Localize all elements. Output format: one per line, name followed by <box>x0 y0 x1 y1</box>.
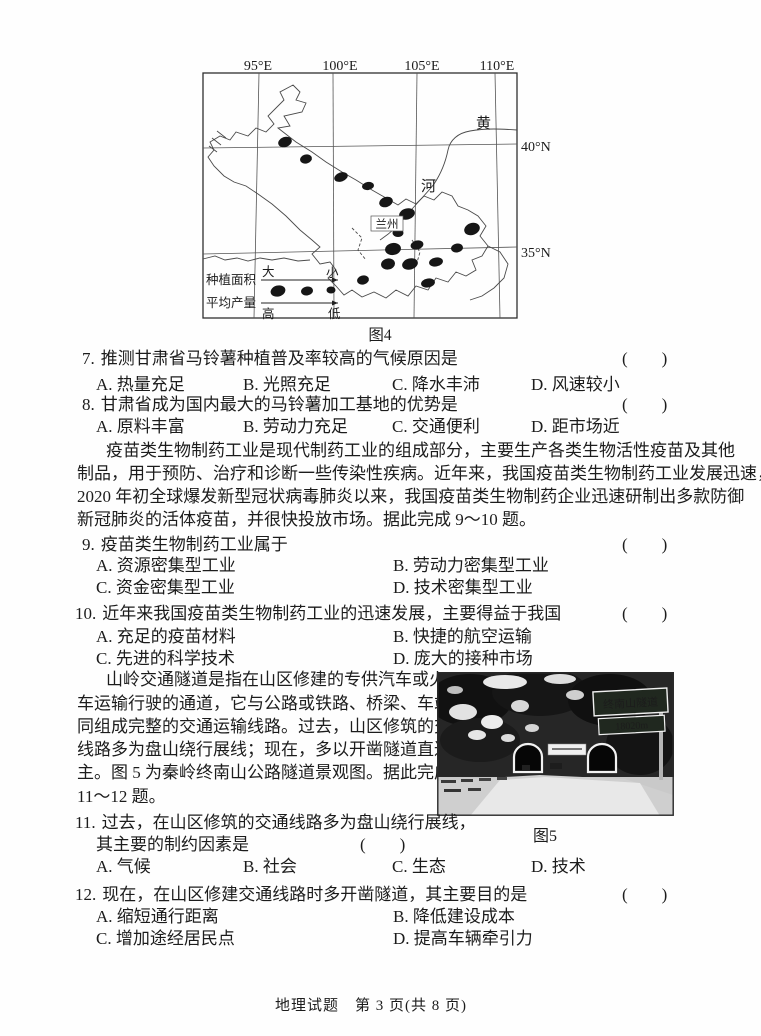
legend-yield-left: 高 <box>262 306 275 321</box>
question-7-option-b: B. 光照充足 <box>243 375 331 395</box>
question-12-option-d: D. 提高车辆牵引力 <box>393 929 533 949</box>
question-11-option-c: C. 生态 <box>392 857 446 877</box>
lat-label-35n: 35°N <box>521 246 551 261</box>
passage1-line-3: 2020 年初全球爆发新型冠状病毒肺炎以来，我国疫苗类生物制药企业迅速研制出多款… <box>77 487 744 507</box>
neighbor-boundary-south <box>203 256 310 261</box>
question-10-number: 10. <box>75 604 96 623</box>
legend-yield-right: 低 <box>328 307 341 321</box>
question-11-answer-bracket: ( ) <box>360 835 405 855</box>
river-label-huang: 黄 <box>476 115 491 132</box>
question-8-option-b: B. 劳动力充足 <box>243 417 348 437</box>
question-8-number: 8. <box>82 395 95 414</box>
question-9-option-b: B. 劳动力密集型工业 <box>393 556 549 576</box>
passage2-line-5: 主。图 5 为秦岭终南山公路隧道景观图。据此完成 <box>77 763 451 783</box>
sign-tunnel-length: 18020m <box>615 720 649 733</box>
question-12-option-c: C. 增加途经居民点 <box>96 929 235 949</box>
lon-label-105e: 105°E <box>404 59 439 74</box>
question-7-answer-bracket: ( ) <box>622 349 667 369</box>
legend-yield-label: 平均产量 <box>206 296 256 310</box>
city-label-lanzhou: 兰州 <box>371 216 403 231</box>
question-8-option-d: D. 距市场近 <box>531 417 620 437</box>
question-12-answer-bracket: ( ) <box>622 885 667 905</box>
river-label-he: 河 <box>421 178 436 195</box>
passage1-line-2: 制品，用于预防、治疗和诊断一些传染性疾病。近年来，我国疫苗类生物制药工业发展迅速… <box>77 464 761 484</box>
page-footer: 地理试题 第 3 页(共 8 页) <box>275 996 467 1016</box>
lon-label-100e: 100°E <box>322 59 357 74</box>
question-11-stem-line2: 其主要的制约因素是 <box>96 835 249 855</box>
lon-label-110e: 110°E <box>480 59 515 74</box>
question-8-option-a: A. 原料丰富 <box>96 417 185 437</box>
potato-area-blobs <box>277 135 482 289</box>
question-11-option-d: D. 技术 <box>531 857 586 877</box>
neighbor-boundary-east <box>470 246 508 300</box>
question-11-stem-line1: 11.过去，在山区修筑的交通线路多为盘山绕行展线， <box>75 813 476 833</box>
question-11-option-a: A. 气候 <box>96 857 151 877</box>
question-10-option-d: D. 庞大的接种市场 <box>393 649 533 669</box>
question-12-stem: 12.现在，在山区修建交通线路时多开凿隧道，其主要目的是 <box>75 885 527 905</box>
question-11-option-b: B. 社会 <box>243 857 297 877</box>
passage2-line-2: 车运输行驶的通道，它与公路或铁路、桥梁、车站等共 <box>77 694 485 714</box>
figure5-caption: 图5 <box>533 827 557 847</box>
question-12-option-b: B. 降低建设成本 <box>393 907 515 927</box>
question-9-answer-bracket: ( ) <box>622 535 667 555</box>
question-7-number: 7. <box>82 349 95 368</box>
question-9-option-d: D. 技术密集型工业 <box>393 578 533 598</box>
figure4-caption: 图4 <box>368 327 392 344</box>
legend-area-label: 种植面积 <box>206 272 256 287</box>
question-12-number: 12. <box>75 885 96 904</box>
passage2-line-4: 线路多为盘山绕行展线；现在，多以开凿隧道直达为 <box>77 740 468 760</box>
inner-boundary-1 <box>352 228 366 260</box>
passage1-line-1: 疫苗类生物制药工业是现代制药工业的组成部分，主要生产各类生物活性疫苗及其他 <box>106 441 735 461</box>
question-7-option-c: C. 降水丰沛 <box>392 375 480 395</box>
question-10-option-b: B. 快捷的航空运输 <box>393 627 532 647</box>
lat-label-40n: 40°N <box>521 140 551 155</box>
svg-text:兰州: 兰州 <box>376 218 399 231</box>
question-10-answer-bracket: ( ) <box>622 604 667 624</box>
question-9-option-c: C. 资金密集型工业 <box>96 578 235 598</box>
figure4-map: 95°E 100°E 105°E 110°E 40°N 35°N 黄 河 <box>185 55 570 350</box>
question-12-option-a: A. 缩短通行距离 <box>96 907 219 927</box>
passage1-line-4: 新冠肺炎的活体疫苗，并很快投放市场。据此完成 9～10 题。 <box>77 510 536 530</box>
question-10-option-a: A. 充足的疫苗材料 <box>96 627 236 647</box>
province-outline <box>208 85 488 298</box>
exam-page: 95°E 100°E 105°E 110°E 40°N 35°N 黄 河 <box>0 0 761 1036</box>
question-10-stem: 10.近年来我国疫苗类生物制药工业的迅速发展，主要得益于我国 <box>75 604 561 624</box>
question-8-answer-bracket: ( ) <box>622 395 667 415</box>
lon-label-95e: 95°E <box>244 59 272 74</box>
passage2-line-1: 山岭交通隧道是指在山区修建的专供汽车或火 <box>106 670 446 690</box>
question-9-stem: 9.疫苗类生物制药工业属于 <box>82 535 288 555</box>
question-9-number: 9. <box>82 535 95 554</box>
question-7-stem: 7.推测甘肃省马铃薯种植普及率较高的气候原因是 <box>82 349 458 369</box>
figure5-photo: 终南山隧道 18020m <box>437 672 674 816</box>
question-8-option-c: C. 交通便利 <box>392 417 480 437</box>
question-7-option-a: A. 热量充足 <box>96 375 185 395</box>
passage2-line-6: 11～12 题。 <box>77 787 166 807</box>
question-7-option-d: D. 风速较小 <box>531 375 620 395</box>
map-legend: 种植面积 大 小 平均产量 高 低 <box>206 265 341 321</box>
passage2-line-3: 同组成完整的交通运输线路。过去，山区修筑的交通 <box>77 717 468 737</box>
legend-area-left: 大 <box>262 265 275 279</box>
question-8-stem: 8.甘肃省成为国内最大的马铃薯加工基地的优势是 <box>82 395 458 415</box>
question-9-option-a: A. 资源密集型工业 <box>96 556 236 576</box>
question-10-option-c: C. 先进的科学技术 <box>96 649 235 669</box>
question-11-number: 11. <box>75 813 96 832</box>
